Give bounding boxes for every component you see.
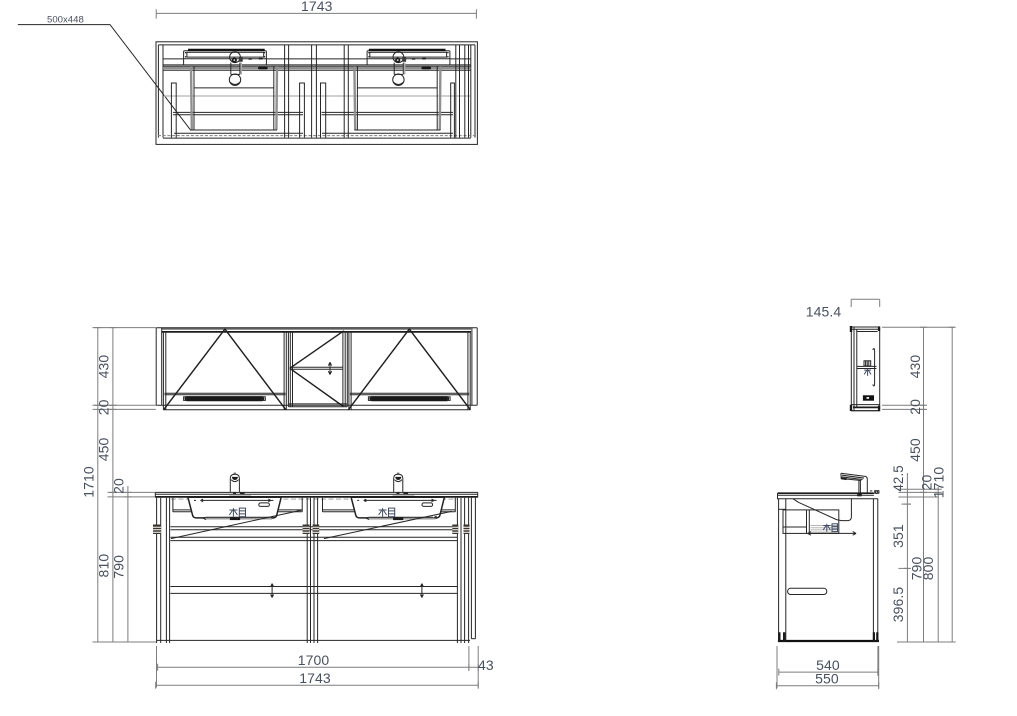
svg-text:42.5: 42.5 xyxy=(891,465,906,491)
svg-text:1743: 1743 xyxy=(299,670,331,686)
svg-text:1700: 1700 xyxy=(298,652,330,668)
svg-text:1710: 1710 xyxy=(81,466,97,498)
svg-text:450: 450 xyxy=(96,437,112,461)
svg-text:790: 790 xyxy=(111,555,127,579)
svg-text:800: 800 xyxy=(920,556,936,580)
svg-text:145.4: 145.4 xyxy=(806,304,842,320)
svg-text:550: 550 xyxy=(815,671,839,687)
svg-text:351: 351 xyxy=(890,524,906,548)
svg-text:396.5: 396.5 xyxy=(890,587,906,623)
svg-text:1743: 1743 xyxy=(301,0,333,14)
svg-text:43: 43 xyxy=(478,657,494,673)
svg-text:20: 20 xyxy=(96,399,112,415)
svg-text:430: 430 xyxy=(96,355,112,379)
svg-text:500x448: 500x448 xyxy=(47,15,84,26)
svg-text:430: 430 xyxy=(907,355,923,379)
svg-text:20: 20 xyxy=(111,478,127,494)
svg-text:1710: 1710 xyxy=(931,467,947,499)
svg-text:20: 20 xyxy=(907,399,923,415)
svg-text:810: 810 xyxy=(96,554,112,578)
svg-text:450: 450 xyxy=(907,438,923,462)
